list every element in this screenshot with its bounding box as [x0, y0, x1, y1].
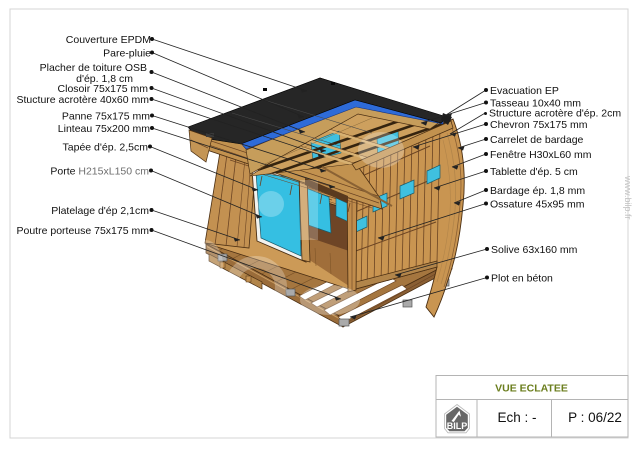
svg-text:Carrelet de bardage: Carrelet de bardage	[490, 134, 584, 146]
svg-text:Poutre porteuse 75x175 mm: Poutre porteuse 75x175 mm	[17, 225, 150, 237]
svg-text:Structure acrotère d'ép. 2cm: Structure acrotère d'ép. 2cm	[489, 108, 621, 120]
svg-text:Solive 63x160 mm: Solive 63x160 mm	[491, 244, 578, 256]
svg-text:Platelage d'ép 2,1cm: Platelage d'ép 2,1cm	[51, 205, 149, 217]
svg-text:BILP: BILP	[447, 421, 468, 431]
svg-text:www.bilp.fr: www.bilp.fr	[623, 175, 633, 220]
svg-text:Evacuation EP: Evacuation EP	[490, 85, 559, 97]
svg-text:Ech : -: Ech : -	[497, 410, 536, 425]
svg-text:Fenêtre H30xL60 mm: Fenêtre H30xL60 mm	[490, 149, 592, 161]
svg-text:Tapée d'ép. 2,5cm: Tapée d'ép. 2,5cm	[63, 142, 149, 154]
svg-text:Pare-pluie: Pare-pluie	[103, 48, 151, 60]
svg-text:Tablette d'ép. 5 cm: Tablette d'ép. 5 cm	[490, 166, 578, 178]
svg-text:Linteau 75x200 mm: Linteau 75x200 mm	[58, 123, 150, 135]
svg-text:VUE ECLATEE: VUE ECLATEE	[495, 383, 568, 395]
svg-text:P : 06/22: P : 06/22	[568, 410, 622, 425]
svg-text:Panne 75x175 mm: Panne 75x175 mm	[62, 111, 150, 123]
svg-text:Stucture acrotère 40x60 mm: Stucture acrotère 40x60 mm	[17, 94, 150, 106]
svg-text:Plot en béton: Plot en béton	[491, 273, 553, 285]
svg-text:Ossature 45x95 mm: Ossature 45x95 mm	[490, 199, 585, 211]
svg-text:Couverture EPDM: Couverture EPDM	[66, 34, 151, 46]
svg-text:Chevron 75x175 mm: Chevron 75x175 mm	[490, 119, 588, 131]
svg-text:Porte H215xL150 cm: Porte H215xL150 cm	[50, 166, 149, 178]
svg-text:Bardage ép. 1,8 mm: Bardage ép. 1,8 mm	[490, 185, 585, 197]
